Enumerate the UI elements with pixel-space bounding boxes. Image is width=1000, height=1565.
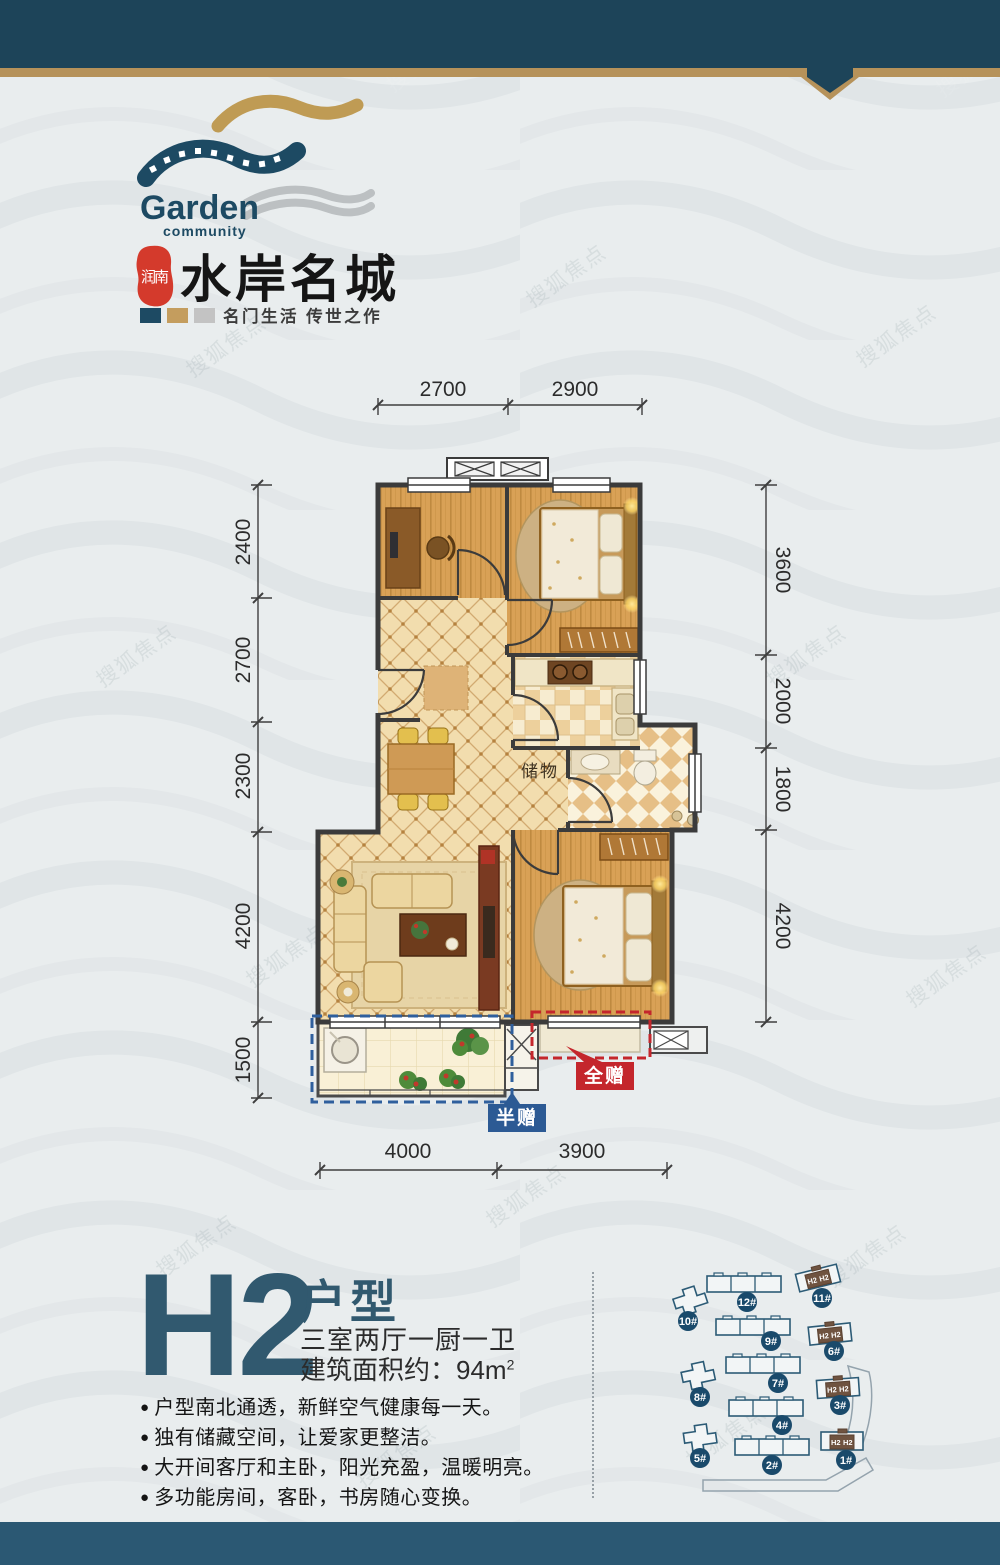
building-number: 5# — [694, 1453, 706, 1465]
site-building-11-h2: H2 H2 — [795, 1261, 841, 1292]
h2-unit-tag: H2 — [827, 1385, 837, 1395]
dim-right-1: 3600 — [771, 547, 794, 594]
dim-right-3: 1800 — [771, 766, 794, 813]
site-building-2 — [735, 1436, 809, 1455]
site-building-4 — [729, 1397, 803, 1416]
watermark-text: 搜狐焦点 — [850, 296, 943, 373]
building-number: 1# — [840, 1455, 852, 1467]
brand-square-gold — [167, 308, 188, 323]
feature-item: 多功能房间，客卧，书房随心变换。 — [140, 1484, 610, 1514]
building-number: 3# — [834, 1400, 846, 1412]
site-building-9 — [716, 1316, 790, 1335]
dim-left-4: 4200 — [235, 903, 255, 950]
unit-code: H2 — [136, 1252, 315, 1398]
dim-top-1: 2700 — [420, 378, 467, 401]
dim-bottom-1: 4000 — [385, 1140, 432, 1163]
watermark-text: 搜狐焦点 — [90, 616, 183, 693]
banner-notch — [807, 68, 853, 77]
building-number: 12# — [738, 1297, 756, 1309]
logo-gray-wave-icon — [246, 190, 371, 216]
living-room-set — [330, 846, 506, 1010]
watermark-text: 搜狐焦点 — [520, 236, 613, 313]
building-number: 6# — [828, 1346, 840, 1358]
logo-gold-wave-icon — [218, 101, 357, 126]
area-sup: 2 — [507, 1356, 515, 1372]
h2-unit-tag: H2 — [819, 1331, 829, 1341]
dim-left-1: 2400 — [235, 519, 255, 566]
dim-top-2: 2900 — [552, 378, 599, 401]
brand-seal-text: 润南 — [141, 269, 169, 286]
building-number: 4# — [776, 1420, 788, 1432]
dim-right-2: 2000 — [771, 678, 794, 725]
dim-bottom-2: 3900 — [559, 1140, 606, 1163]
building-number: 11# — [813, 1293, 831, 1305]
h2-unit-tag: H2 — [831, 1330, 841, 1340]
full-gift-label: 全赠 — [583, 1064, 626, 1087]
site-building-8 — [680, 1360, 716, 1391]
site-building-3-h2: H2 H2 — [816, 1375, 859, 1399]
area-text: 建筑面积约：94m — [300, 1355, 507, 1385]
feature-item: 独有储藏空间，让爱家更整洁。 — [140, 1424, 610, 1454]
building-number: 8# — [694, 1392, 706, 1404]
building-number: 10# — [679, 1316, 697, 1328]
storage-label: 储物 — [521, 762, 559, 781]
site-plan: H2 H2 H2 H2 H2 H2 H2 H2 10# 12# 11# 9 — [640, 1255, 1000, 1515]
h2-unit-tag: H2 — [839, 1384, 849, 1394]
feature-item: 大开间客厅和主卧，阳光充盈，温暖明亮。 — [140, 1454, 610, 1484]
site-building-1-h2: H2 H2 — [821, 1429, 863, 1450]
brand-en-sub: community — [163, 223, 247, 239]
site-building-5 — [682, 1423, 717, 1452]
building-number: 2# — [766, 1460, 778, 1472]
site-building-12 — [707, 1273, 781, 1292]
area-line: 建筑面积约：94m2 — [300, 1350, 514, 1387]
banner-notch-blue — [807, 77, 853, 93]
floor-plan: 储物 全赠 半赠 2700 2900 2400 — [235, 378, 795, 1184]
h2-unit-tag: H2 — [831, 1438, 841, 1447]
half-gift-label: 半赠 — [496, 1106, 538, 1129]
entry-mat — [424, 666, 468, 710]
dim-left-5: 1500 — [235, 1037, 255, 1084]
brand-square-blue — [140, 308, 161, 323]
site-building-7 — [726, 1354, 800, 1373]
brand-cn: 水岸名城 — [180, 251, 400, 308]
brand-square-gray — [194, 308, 215, 323]
dim-left-3: 2300 — [235, 753, 255, 800]
ac-platform — [650, 1027, 707, 1053]
brand-name-block: 润南 水岸名城 名门生活 传世之作 — [120, 240, 420, 335]
top-banner — [0, 0, 1000, 68]
dim-right-4: 4200 — [771, 903, 794, 950]
logo-film-wave-icon — [146, 148, 297, 178]
brand-en: Garden — [140, 189, 259, 227]
building-number: 7# — [772, 1378, 784, 1390]
feature-list: 户型南北通透，新鲜空气健康每一天。 独有储藏空间，让爱家更整洁。 大开间客厅和主… — [140, 1394, 610, 1514]
brand-tagline: 名门生活 传世之作 — [223, 306, 382, 326]
watermark-text: 搜狐焦点 — [900, 936, 993, 1013]
room-storage-floor — [513, 748, 568, 830]
building-number: 9# — [765, 1336, 777, 1348]
site-building-6-h2: H2 H2 — [808, 1320, 852, 1345]
poster: 搜狐焦点搜狐焦点搜狐焦点搜狐焦点搜狐焦点搜狐焦点搜狐焦点搜狐焦点搜狐焦点搜狐焦点… — [0, 0, 1000, 1565]
dim-left-2: 2700 — [235, 637, 255, 684]
h2-unit-tag: H2 — [843, 1438, 853, 1447]
dotted-divider — [592, 1272, 594, 1498]
feature-item: 户型南北通透，新鲜空气健康每一天。 — [140, 1394, 610, 1424]
half-gift-badge: 半赠 — [488, 1092, 546, 1132]
footer-bar — [0, 1522, 1000, 1565]
